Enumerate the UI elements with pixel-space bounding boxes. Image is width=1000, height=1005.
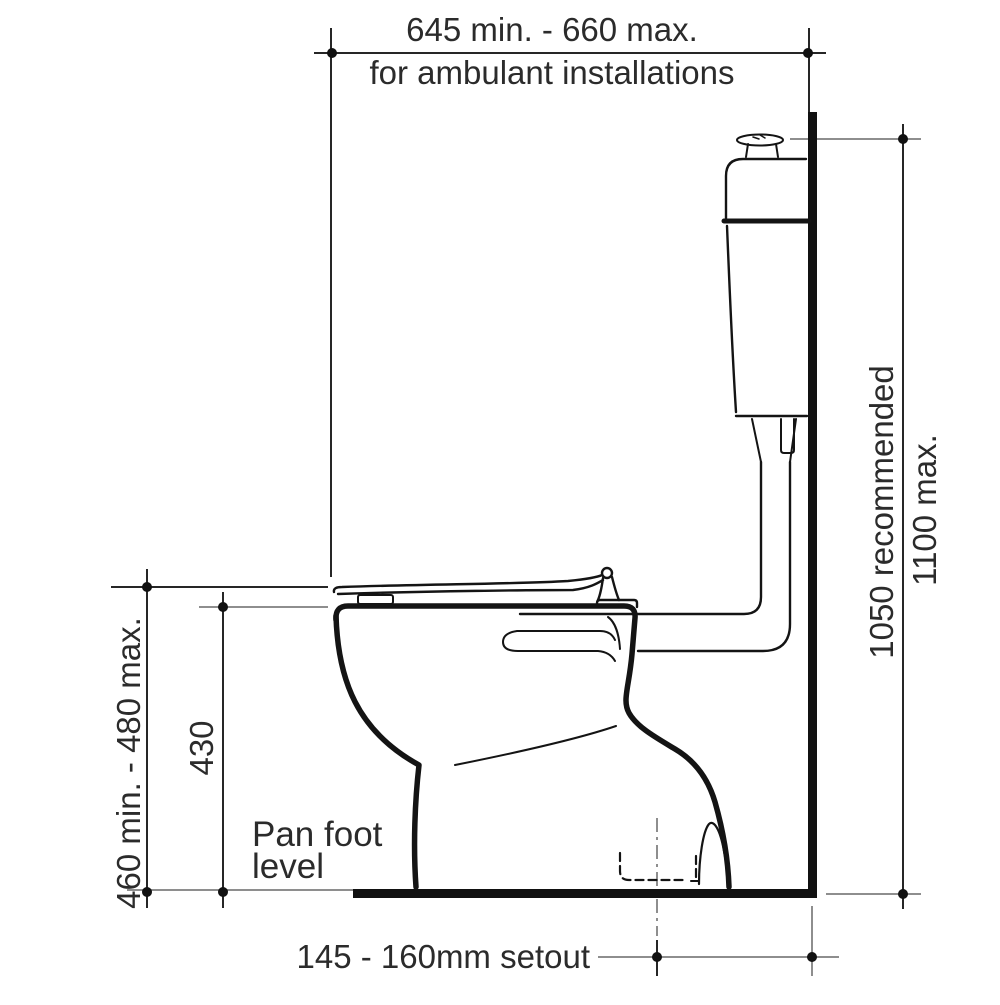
seat-height-label: 460 min. - 480 max. — [110, 617, 147, 909]
toilet-seat — [334, 568, 637, 607]
dot-top-right — [803, 48, 813, 58]
flush-pipe — [520, 462, 790, 651]
cistern-lid-outline — [726, 159, 806, 221]
leader-lines — [127, 139, 921, 976]
dot-setout-right — [807, 952, 817, 962]
flush-pipe-outer-edge — [638, 462, 790, 651]
wall — [808, 112, 817, 898]
dot-pan-bottom — [218, 887, 228, 897]
diagram-canvas: 645 min. - 660 max. for ambulant install… — [0, 0, 1000, 1000]
floor — [353, 889, 817, 898]
dimension-lines — [111, 28, 903, 976]
dot-pan-top — [218, 602, 228, 612]
dot-right-bottom — [898, 889, 908, 899]
toilet-pan — [336, 606, 729, 887]
top-dimension-note: for ambulant installations — [369, 54, 734, 91]
dot-setout-left — [652, 952, 662, 962]
pan-height-label: 430 — [183, 720, 220, 775]
seat-hinge-pin — [602, 568, 612, 578]
dot-seat-top — [142, 582, 152, 592]
height-recommended-label: 1050 recommended — [863, 365, 900, 659]
installation-diagram: 645 min. - 660 max. for ambulant install… — [0, 0, 1000, 1000]
cistern — [724, 135, 809, 463]
seat-buffer — [358, 595, 393, 604]
toilet-suite — [334, 135, 809, 888]
hidden-trap-outline-left — [620, 853, 684, 880]
dot-right-top — [898, 134, 908, 144]
setout-dimension-label: 145 - 160mm setout — [297, 938, 591, 975]
bowl-underside-line — [455, 726, 616, 765]
pan-foot-label-line2: level — [252, 847, 324, 886]
height-max-label: 1100 max. — [906, 434, 943, 586]
top-dimension-label: 645 min. - 660 max. — [406, 11, 698, 48]
cistern-outlet-taper — [752, 419, 796, 462]
cistern-body-left-edge — [727, 226, 736, 412]
inlet-spud — [503, 631, 615, 661]
diagram-labels: 645 min. - 660 max. for ambulant install… — [110, 11, 943, 975]
dot-top-left — [327, 48, 337, 58]
